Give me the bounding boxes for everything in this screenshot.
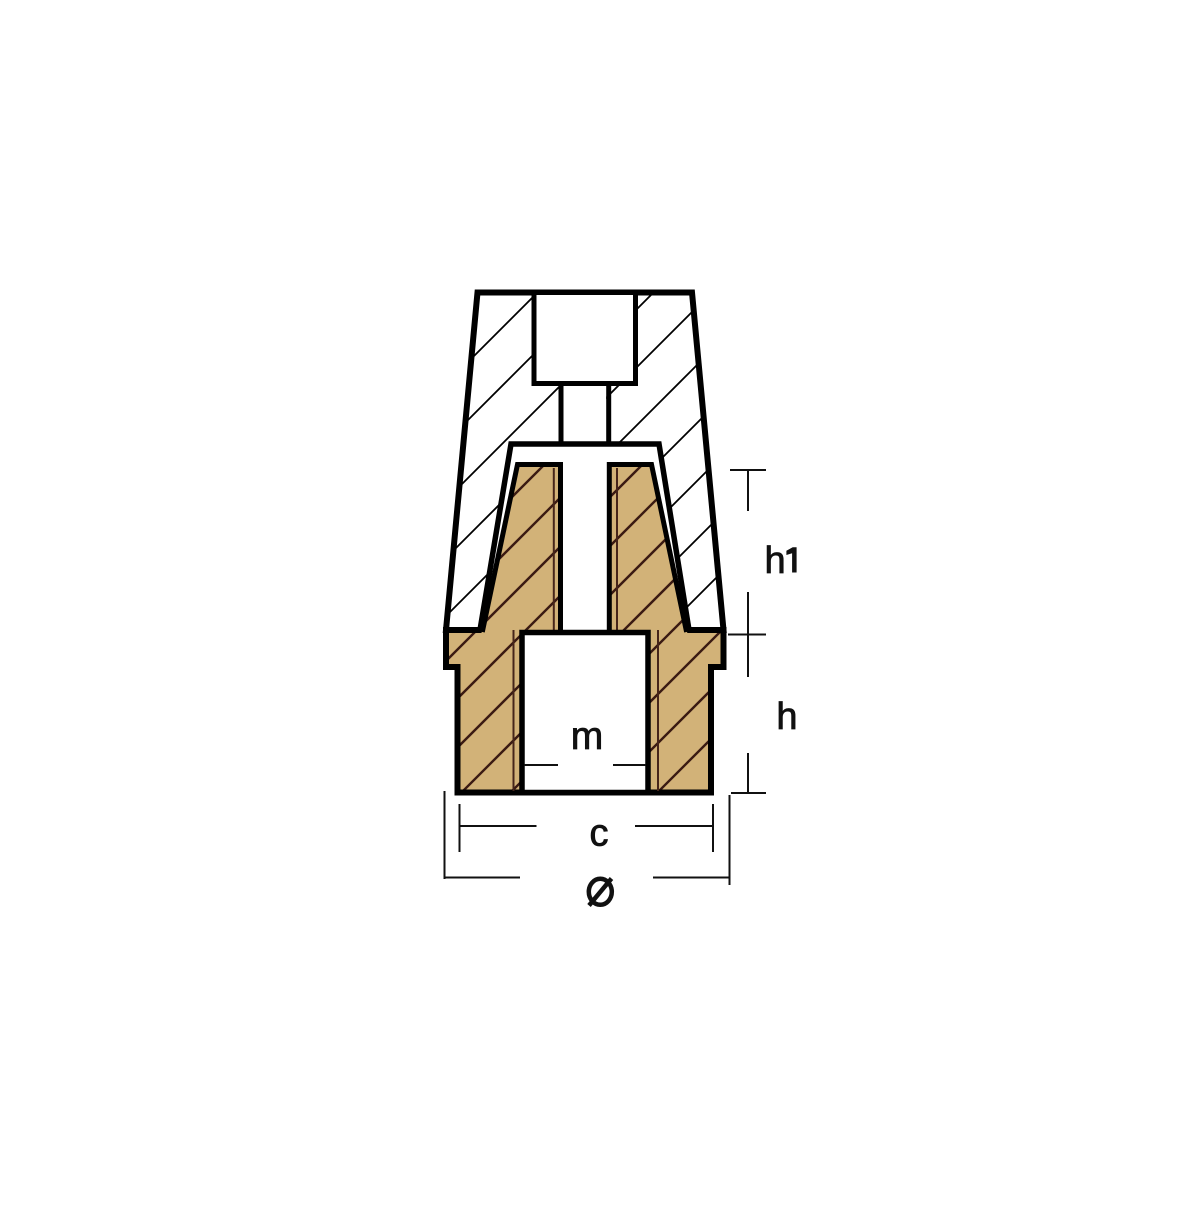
svg-text:c: c <box>590 813 609 855</box>
svg-text:h: h <box>776 696 797 738</box>
svg-text:m: m <box>571 715 604 758</box>
svg-text:h: h <box>765 540 786 582</box>
